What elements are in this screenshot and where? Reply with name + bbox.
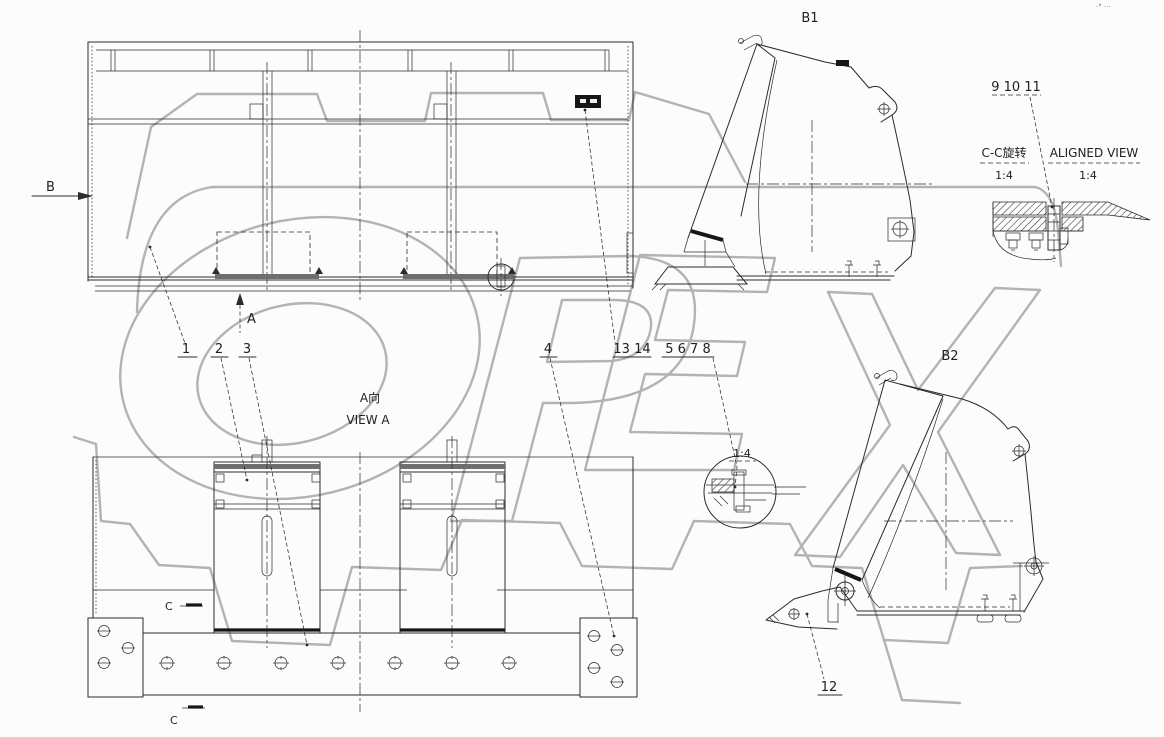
section-cc-title: C-C旋转 (981, 145, 1026, 160)
aligned-view-title: ALIGNED VIEW (1050, 146, 1139, 160)
section-marker-c-upper-label: C (165, 600, 173, 613)
pin-tower-left (214, 436, 320, 648)
view-a-title-en: VIEW A (346, 413, 390, 427)
section-cc-aligned: C-C旋转 1:4 ALIGNED VIEW 1:4 (980, 145, 1150, 262)
view-a: C C (88, 436, 637, 727)
section-marker-c-lower-label: C (170, 714, 178, 727)
section-marker-c-lower: C (170, 707, 205, 727)
section-cc-scale: 1:4 (995, 169, 1013, 182)
aligned-view-scale: 1:4 (1079, 169, 1097, 182)
detail-scale: 1:4 (733, 447, 751, 460)
view-a-arrow: A (236, 293, 256, 333)
view-a-title-cn: A向 (360, 390, 380, 405)
b1-title: B1 (801, 11, 818, 26)
detail-circle: 1:4 (704, 447, 806, 528)
callout-13-14: 13 14 (613, 342, 650, 357)
view-a-title: A向 VIEW A (346, 390, 390, 427)
callout-3: 3 (243, 342, 251, 357)
side-view-b1: B1 (652, 11, 932, 290)
b2-title: B2 (941, 349, 958, 364)
callout-4: 4 (544, 342, 552, 357)
callout-5-6-7-8: 5 6 7 8 (665, 342, 710, 357)
callout-9-10-11: 9 10 11 (991, 80, 1041, 95)
rear-view (88, 30, 633, 300)
direction-marker-b: B (32, 180, 93, 200)
view-a-arrow-label: A (247, 312, 256, 327)
callout-2: 2 (215, 342, 223, 357)
engineering-drawing-page: B A (0, 0, 1164, 737)
callout-1: 1 (182, 342, 190, 357)
section-marker-c-upper: C (165, 600, 203, 613)
edge-bolts (97, 626, 624, 688)
callout-12: 12 (821, 680, 838, 695)
corner-note: ·° ··· (1096, 3, 1111, 11)
section-plates (993, 202, 1150, 237)
direction-marker-b-label: B (46, 180, 55, 195)
drawing-canvas: B A (0, 0, 1164, 737)
section-bolts (1006, 233, 1043, 250)
side-view-b2: B2 (766, 349, 1049, 629)
name-plate (575, 95, 601, 108)
